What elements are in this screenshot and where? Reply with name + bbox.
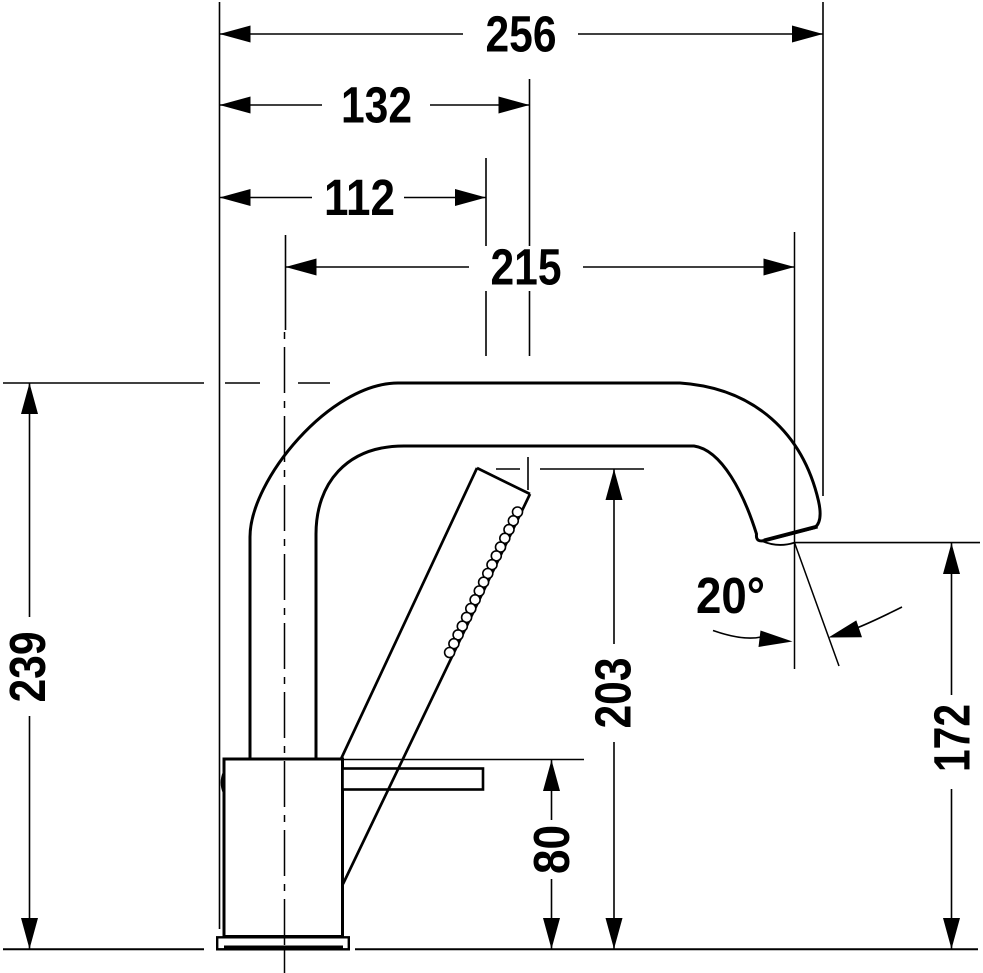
svg-text:20°: 20° xyxy=(696,567,765,624)
svg-text:132: 132 xyxy=(341,77,412,134)
svg-text:80: 80 xyxy=(523,825,580,874)
svg-text:215: 215 xyxy=(491,239,562,296)
svg-text:239: 239 xyxy=(0,632,56,703)
svg-text:203: 203 xyxy=(585,658,642,729)
svg-text:256: 256 xyxy=(486,6,557,63)
svg-text:112: 112 xyxy=(324,169,395,226)
svg-text:172: 172 xyxy=(924,704,981,772)
